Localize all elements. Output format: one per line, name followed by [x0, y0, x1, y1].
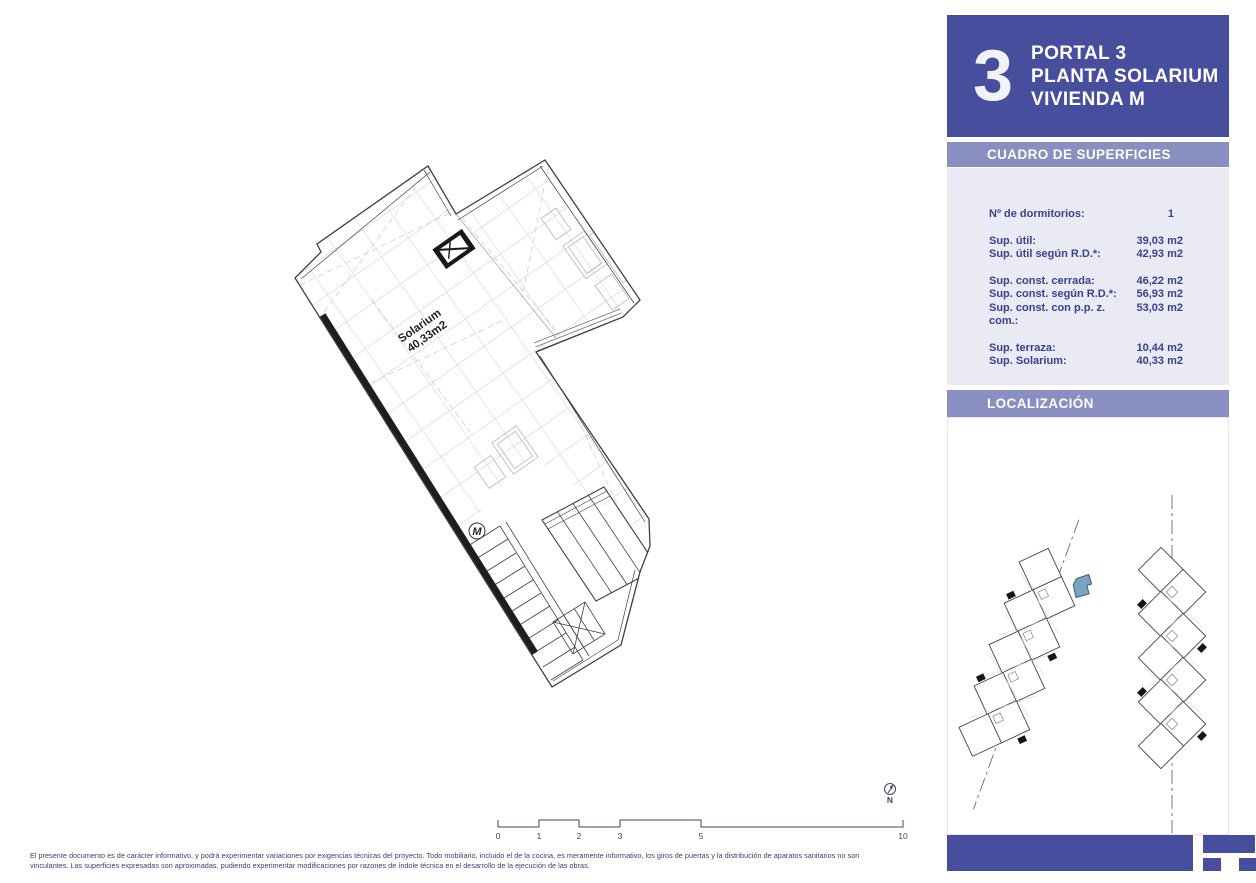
- table-row: Sup. const. cerrada: 46,22 m2: [989, 275, 1183, 289]
- disclaimer-line1: El presente documento es de carácter inf…: [30, 851, 859, 861]
- disclaimer-text: El presente documento es de carácter inf…: [30, 851, 859, 871]
- scale-label-0: 0: [496, 831, 501, 841]
- table-row: Sup. const. con p.p. z. com.: 53,03 m2: [989, 302, 1183, 329]
- brand-logo-block: [1239, 858, 1256, 871]
- site-plan: [948, 418, 1228, 834]
- footer-brand-bar: [947, 835, 1193, 871]
- plan-sheet-page: M Solarium 40,33m2 0 1 2 3 5 10 N: [0, 0, 1256, 883]
- row-label: Sup. Solarium:: [989, 355, 1067, 369]
- table-row: Sup. terraza: 10,44 m2: [989, 342, 1183, 356]
- title-vivienda: VIVIENDA M: [1031, 88, 1219, 111]
- row-label: Nº de dormitorios:: [989, 208, 1085, 222]
- scale-label-1: 1: [537, 831, 542, 841]
- north-indicator: N: [885, 784, 896, 806]
- surfaces-table: Nº de dormitorios: 1 Sup. útil: 39,03 m2…: [947, 168, 1229, 385]
- row-value: 10,44 m2: [1137, 342, 1183, 356]
- surfaces-band: CUADRO DE SUPERFICIES: [947, 142, 1229, 167]
- title-planta: PLANTA SOLARIUM: [1031, 65, 1219, 88]
- table-row: Sup. útil según R.D.*: 42,93 m2: [989, 248, 1183, 262]
- scale-label-10: 10: [898, 831, 908, 841]
- row-value: 56,93 m2: [1137, 288, 1183, 302]
- disclaimer-line2: vinculantes. Las superficies expresadas …: [30, 861, 859, 871]
- brand-logo-block: [1203, 835, 1255, 853]
- row-label: Sup. terraza:: [989, 342, 1056, 356]
- scale-label-3: 3: [618, 831, 623, 841]
- site-building-left: [948, 505, 1112, 821]
- scale-label-2: 2: [577, 831, 582, 841]
- site-building-right: [1137, 495, 1207, 833]
- row-value: 46,22 m2: [1137, 275, 1183, 289]
- row-value: 1: [1168, 208, 1183, 222]
- row-value: 42,93 m2: [1137, 248, 1183, 262]
- table-row: Sup. útil: 39,03 m2: [989, 235, 1183, 249]
- table-row: Nº de dormitorios: 1: [989, 208, 1183, 222]
- sheet-title-block: 3 PORTAL 3 PLANTA SOLARIUM VIVIENDA M: [947, 15, 1229, 137]
- floor-plan-drawing: M Solarium 40,33m2 0 1 2 3 5 10 N: [0, 0, 947, 883]
- brand-logo-block: [1203, 858, 1221, 871]
- row-label: Sup. const. con p.p. z. com.:: [989, 302, 1137, 329]
- localization-map: [947, 417, 1229, 835]
- localization-title: LOCALIZACIÓN: [987, 396, 1094, 411]
- north-label: N: [887, 795, 893, 805]
- table-row: Sup. Solarium: 40,33 m2: [989, 355, 1183, 369]
- portal-number: 3: [973, 40, 1013, 112]
- unit-letter-badge: M: [469, 523, 485, 539]
- row-label: Sup. const. cerrada:: [989, 275, 1095, 289]
- row-label: Sup. const. según R.D.*:: [989, 288, 1117, 302]
- row-value: 40,33 m2: [1137, 355, 1183, 369]
- row-value: 39,03 m2: [1137, 235, 1183, 249]
- surfaces-title: CUADRO DE SUPERFICIES: [987, 147, 1171, 162]
- unit-letter: M: [472, 526, 482, 538]
- row-value: 53,03 m2: [1137, 302, 1183, 329]
- row-label: Sup. útil según R.D.*:: [989, 248, 1101, 262]
- row-label: Sup. útil:: [989, 235, 1036, 249]
- localization-band: LOCALIZACIÓN: [947, 390, 1229, 417]
- scale-label-5: 5: [699, 831, 704, 841]
- title-portal: PORTAL 3: [1031, 42, 1219, 65]
- highlighted-unit: [1069, 571, 1095, 602]
- table-row: Sup. const. según R.D.*: 56,93 m2: [989, 288, 1183, 302]
- scale-bar: 0 1 2 3 5 10: [496, 820, 908, 841]
